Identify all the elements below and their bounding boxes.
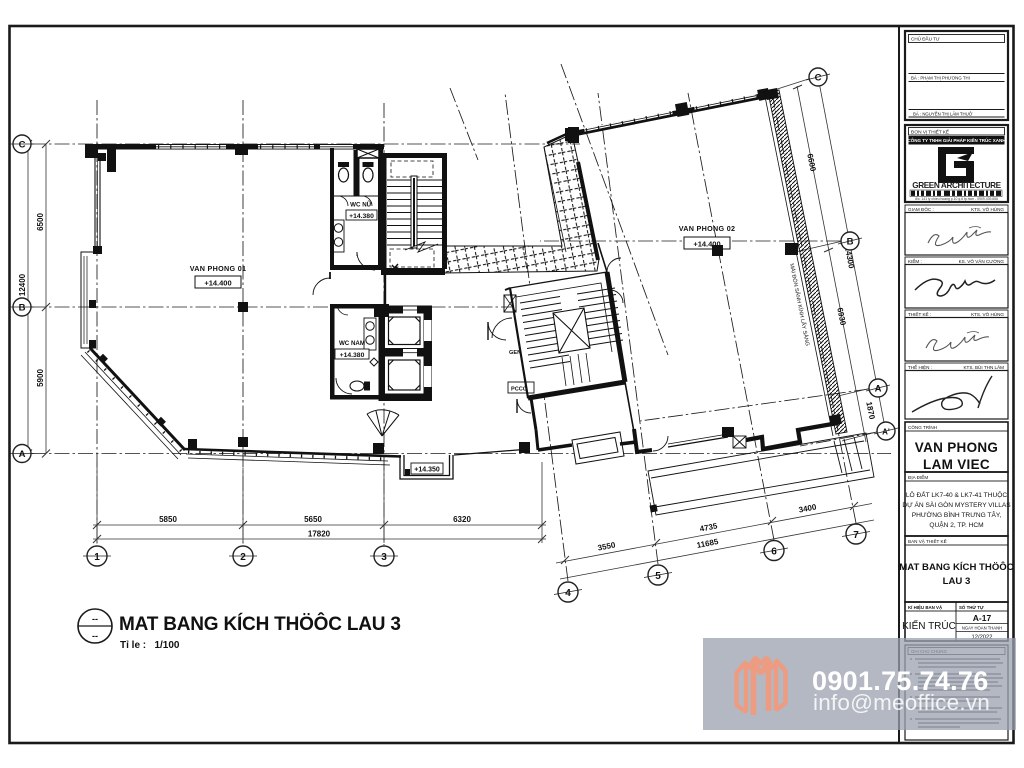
svg-text:+14.380: +14.380 bbox=[349, 213, 374, 220]
svg-text:đ/c: 141 ly chieu hoang p.10 q: đ/c: 141 ly chieu hoang p.10 q.6 tp.hcm … bbox=[915, 197, 998, 201]
svg-text:6: 6 bbox=[771, 547, 777, 558]
svg-text:VAN PHONG: VAN PHONG bbox=[915, 440, 998, 455]
svg-text:C: C bbox=[815, 73, 822, 84]
svg-text:GIAM ĐÔC :: GIAM ĐÔC : bbox=[908, 206, 934, 212]
svg-text:A-17: A-17 bbox=[973, 613, 992, 623]
svg-text:GEN: GEN bbox=[509, 350, 521, 356]
svg-text:DỰ ÁN SÀI GÒN MYSTERY VILLAS: DỰ ÁN SÀI GÒN MYSTERY VILLAS bbox=[902, 500, 1011, 509]
svg-text:--: -- bbox=[92, 631, 98, 641]
svg-text:3: 3 bbox=[381, 552, 387, 563]
svg-text:KTS. VÕ HÙNG: KTS. VÕ HÙNG bbox=[971, 311, 1004, 317]
svg-text:6500: 6500 bbox=[36, 213, 45, 231]
svg-text:CHỦ ĐẦU TƯ: CHỦ ĐẦU TƯ bbox=[911, 36, 940, 42]
svg-text:KIỂM :: KIỂM : bbox=[908, 258, 922, 264]
svg-text:2: 2 bbox=[240, 552, 246, 563]
svg-text:5: 5 bbox=[655, 571, 661, 582]
svg-text:MAT BANG KÍCH THÖÔC: MAT BANG KÍCH THÖÔC bbox=[899, 561, 1013, 573]
svg-text:KTS. VÕ HÙNG: KTS. VÕ HÙNG bbox=[971, 206, 1004, 212]
svg-text:A: A bbox=[19, 449, 26, 460]
svg-text:THỂ HIỆN :: THỂ HIỆN : bbox=[908, 363, 932, 370]
svg-text:BÀ : PHẠM THỊ PHƯƠNG THI: BÀ : PHẠM THỊ PHƯƠNG THI bbox=[911, 76, 970, 81]
svg-text:THIẾT KẾ :: THIẾT KẾ : bbox=[908, 311, 931, 317]
svg-text:--: -- bbox=[92, 614, 98, 624]
svg-text:KTS. BÙI THN LÂM: KTS. BÙI THN LÂM bbox=[963, 364, 1004, 370]
svg-text:ĐƠN VỊ THIẾT KẾ: ĐƠN VỊ THIẾT KẾ bbox=[911, 128, 949, 134]
svg-text:1: 1 bbox=[94, 552, 100, 563]
svg-text:QUẬN 2, TP. HCM: QUẬN 2, TP. HCM bbox=[929, 520, 983, 529]
svg-text:17820: 17820 bbox=[308, 530, 331, 539]
svg-text:VAN PHONG 01: VAN PHONG 01 bbox=[190, 264, 247, 273]
svg-text:6320: 6320 bbox=[453, 515, 471, 524]
svg-text:LAM VIEC: LAM VIEC bbox=[923, 457, 990, 472]
svg-text:B: B bbox=[847, 237, 854, 248]
svg-text:NGAY HOAN THANH: NGAY HOAN THANH bbox=[962, 626, 1002, 631]
svg-text:WC NAM: WC NAM bbox=[339, 340, 365, 347]
svg-text:7: 7 bbox=[853, 530, 859, 541]
svg-text:SỐ THỨ TỰ: SỐ THỨ TỰ bbox=[959, 605, 984, 610]
svg-text:+14.380: +14.380 bbox=[340, 352, 365, 359]
svg-text:PHƯỜNG BÌNH TRƯNG TÂY,: PHƯỜNG BÌNH TRƯNG TÂY, bbox=[912, 510, 1002, 519]
svg-text:Tỉ le : 1/100: Tỉ le : 1/100 bbox=[120, 640, 180, 651]
svg-text:5850: 5850 bbox=[159, 515, 177, 524]
svg-text:5650: 5650 bbox=[304, 515, 322, 524]
svg-text:KÍ HIỆU BAN VẶ: KÍ HIỆU BAN VẶ bbox=[908, 605, 943, 610]
svg-text:+14.350: +14.350 bbox=[414, 467, 440, 474]
svg-text:PCCC: PCCC bbox=[511, 387, 527, 393]
svg-text:12400: 12400 bbox=[18, 273, 27, 296]
svg-text:CÔNG TRÌNH: CÔNG TRÌNH bbox=[908, 424, 937, 430]
svg-text:KIẾN TRÚC: KIẾN TRÚC bbox=[902, 619, 956, 632]
svg-text:KS. VÕ VĂN CƯỜNG: KS. VÕ VĂN CƯỜNG bbox=[959, 258, 1005, 264]
svg-text:C: C bbox=[19, 140, 26, 151]
svg-text:WC NỮ: WC NỮ bbox=[350, 202, 372, 209]
svg-text:GREEN ARCHITECTURE: GREEN ARCHITECTURE bbox=[912, 181, 1001, 190]
svg-text:MAT BANG KÍCH THÖÔC LAU 3: MAT BANG KÍCH THÖÔC LAU 3 bbox=[119, 613, 401, 635]
svg-text:VAN PHONG 02: VAN PHONG 02 bbox=[679, 224, 736, 233]
svg-text:A: A bbox=[875, 384, 882, 395]
svg-text:4: 4 bbox=[565, 588, 571, 599]
svg-text:BAN VẶ THIẾT KẾ: BAN VẶ THIẾT KẾ bbox=[908, 538, 947, 544]
svg-text:BÀ : NGUYỄN THỊ LÃM THUỞ: BÀ : NGUYỄN THỊ LÃM THUỞ bbox=[913, 112, 973, 117]
svg-text:B: B bbox=[19, 303, 26, 314]
svg-text:LAU 3: LAU 3 bbox=[943, 576, 971, 587]
svg-text:+14.400: +14.400 bbox=[204, 279, 231, 288]
svg-text:CÔNG TY TNHH GIẢI PHÁP KIẾN TR: CÔNG TY TNHH GIẢI PHÁP KIẾN TRÚC XANH bbox=[907, 136, 1005, 143]
svg-text:ĐỊA ĐIỂM: ĐỊA ĐIỂM bbox=[908, 474, 928, 480]
svg-text:A': A' bbox=[882, 428, 890, 437]
svg-text:5900: 5900 bbox=[36, 369, 45, 387]
svg-text:info@meoffice.vn: info@meoffice.vn bbox=[813, 690, 990, 715]
